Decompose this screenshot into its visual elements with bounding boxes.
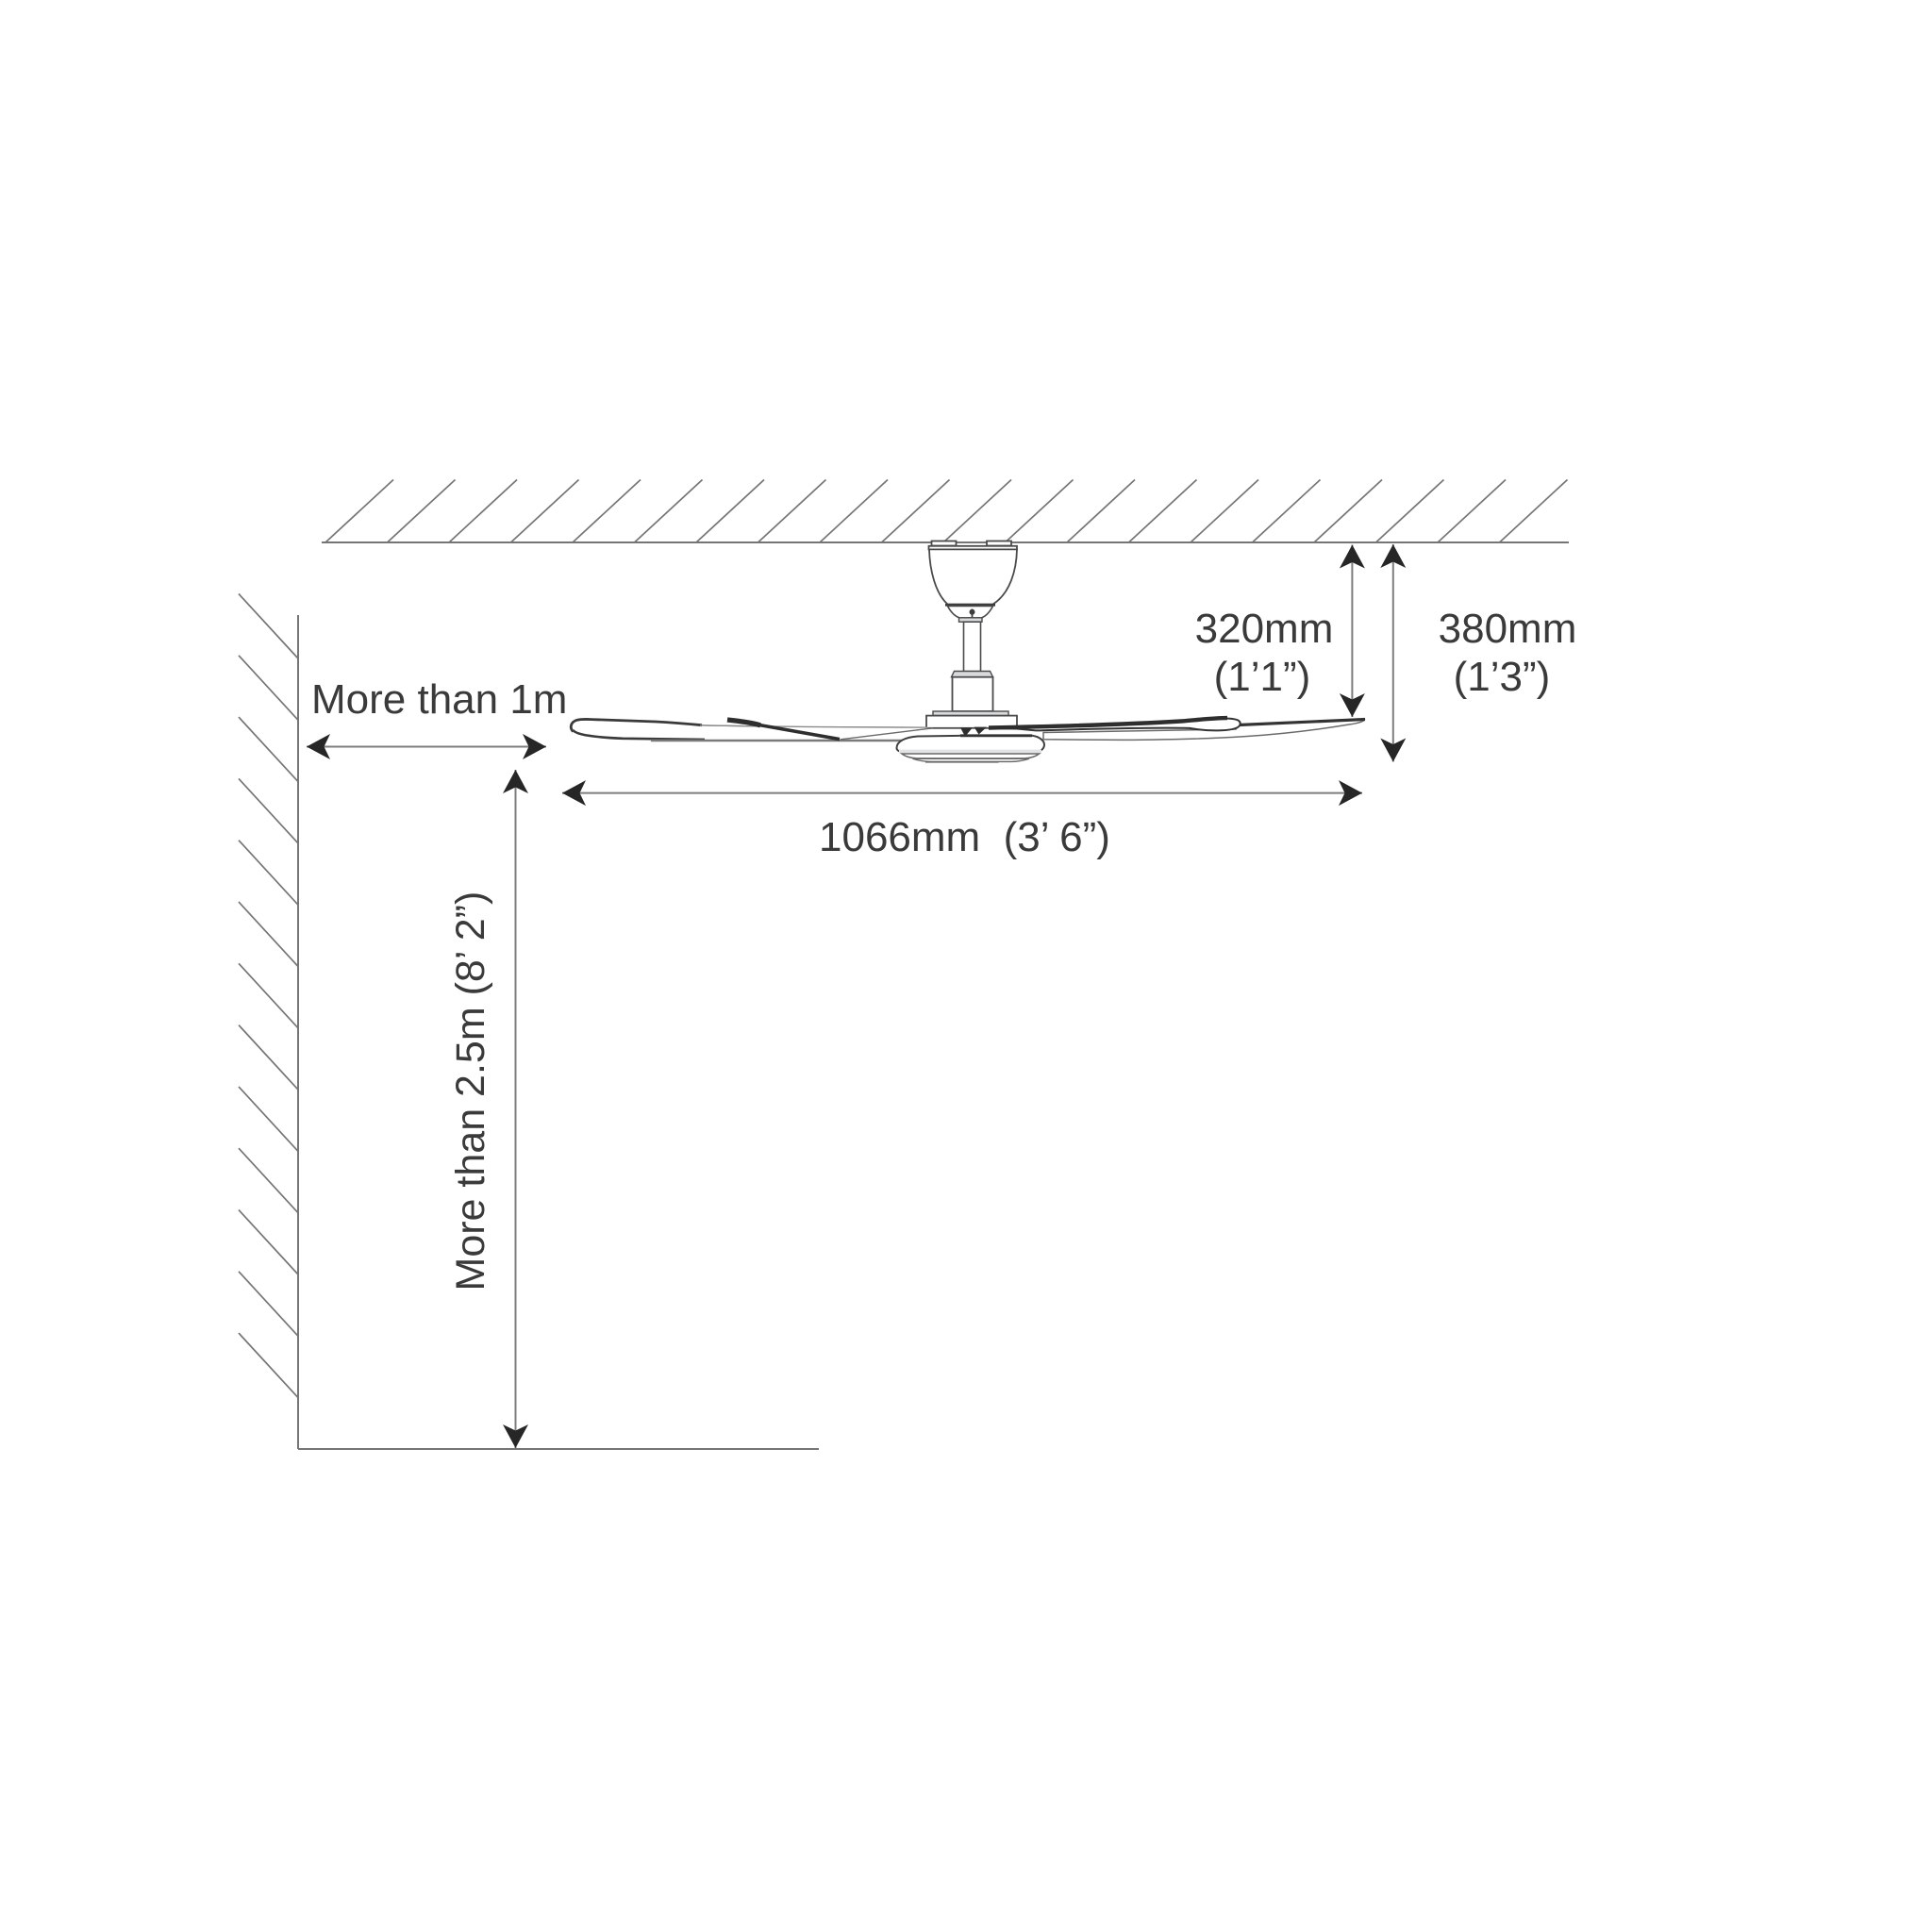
svg-text:380mm: 380mm: [1439, 606, 1577, 652]
svg-text:More than 2.5m (8’ 2”): More than 2.5m (8’ 2”): [448, 891, 493, 1291]
svg-text:(1’3”): (1’3”): [1454, 654, 1551, 700]
svg-text:320mm: 320mm: [1195, 606, 1334, 652]
svg-text:(1’1”): (1’1”): [1214, 654, 1311, 700]
svg-text:More than 1m: More than 1m: [311, 676, 567, 723]
svg-text:1066mm (3’ 6”): 1066mm (3’ 6”): [819, 814, 1110, 860]
